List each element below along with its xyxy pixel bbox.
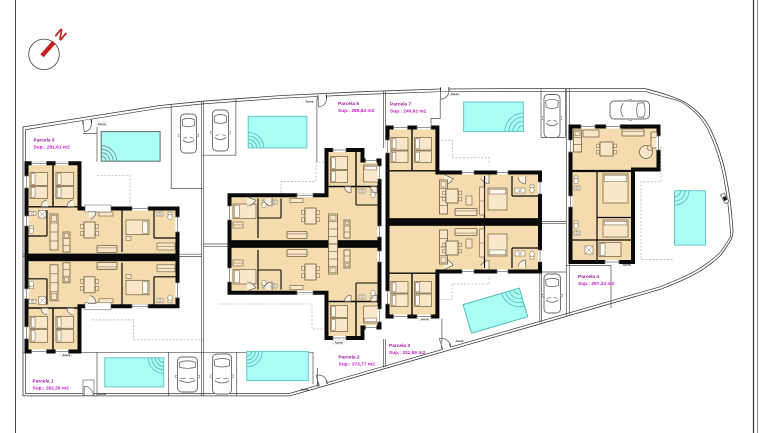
- svg-text:Sup.: 297,33 m2: Sup.: 297,33 m2: [578, 281, 615, 287]
- svg-text:Parcela 5: Parcela 5: [34, 138, 55, 144]
- svg-text:Parcela 7: Parcela 7: [390, 102, 411, 108]
- svg-text:Parcela 4: Parcela 4: [578, 274, 599, 280]
- svg-text:Parcela 3: Parcela 3: [389, 343, 410, 349]
- svg-text:Acera: Acera: [451, 92, 459, 96]
- svg-text:Parcela 6: Parcela 6: [338, 101, 359, 107]
- svg-text:Acera: Acera: [98, 392, 106, 396]
- svg-text:Parcela 2: Parcela 2: [339, 355, 360, 361]
- svg-text:Acera: Acera: [62, 353, 70, 357]
- svg-text:Acera: Acera: [98, 122, 106, 126]
- svg-text:Sup.: 285,84 m2: Sup.: 285,84 m2: [338, 108, 375, 114]
- svg-text:Acera: Acera: [335, 340, 343, 344]
- svg-text:Acera: Acera: [306, 100, 314, 104]
- svg-text:Acera: Acera: [301, 387, 309, 391]
- svg-text:Sup.: 373,77 m2: Sup.: 373,77 m2: [339, 362, 376, 368]
- svg-text:Sup.: 240,92 m2: Sup.: 240,92 m2: [390, 109, 427, 115]
- svg-text:Parcela 1: Parcela 1: [33, 379, 54, 385]
- svg-text:Sup.: 262,36 m2: Sup.: 262,36 m2: [33, 386, 70, 392]
- svg-text:Sup.: 331,59 m2: Sup.: 331,59 m2: [389, 350, 426, 356]
- svg-text:Acera: Acera: [456, 339, 464, 343]
- svg-text:Sup.: 281,61 m2: Sup.: 281,61 m2: [34, 145, 71, 151]
